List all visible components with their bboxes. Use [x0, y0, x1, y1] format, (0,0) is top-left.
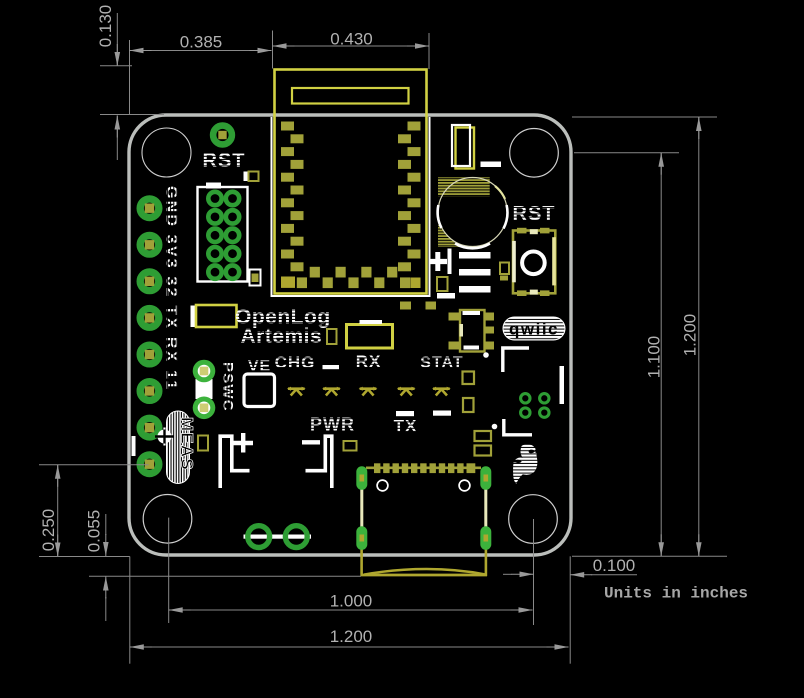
- svg-text:CHG: CHG: [275, 353, 316, 372]
- svg-text:PSWC: PSWC: [219, 362, 236, 412]
- svg-text:1.000: 1.000: [330, 592, 373, 611]
- svg-text:0.250: 0.250: [39, 509, 58, 552]
- svg-text:STAT: STAT: [420, 355, 463, 372]
- svg-text:1.100: 1.100: [645, 336, 664, 379]
- svg-text:GND 3V3 32 TX RX 11: GND 3V3 32 TX RX 11: [163, 186, 180, 391]
- svg-text:RST: RST: [203, 150, 246, 172]
- svg-text:0.130: 0.130: [96, 5, 115, 48]
- svg-text:Units in inches: Units in inches: [604, 585, 748, 603]
- svg-text:PWR: PWR: [310, 415, 355, 435]
- svg-text:TX: TX: [394, 417, 418, 436]
- svg-text:RX: RX: [356, 352, 382, 371]
- svg-text:RST: RST: [513, 203, 556, 225]
- svg-text:1.200: 1.200: [330, 627, 373, 646]
- svg-text:0.100: 0.100: [593, 556, 636, 575]
- svg-text:MEAS: MEAS: [178, 417, 197, 471]
- svg-text:Artemis: Artemis: [241, 325, 323, 348]
- svg-text:1.200: 1.200: [681, 314, 700, 357]
- svg-text:0.385: 0.385: [180, 33, 223, 52]
- svg-text:0.055: 0.055: [85, 510, 104, 553]
- svg-text:qwiic: qwiic: [509, 320, 559, 339]
